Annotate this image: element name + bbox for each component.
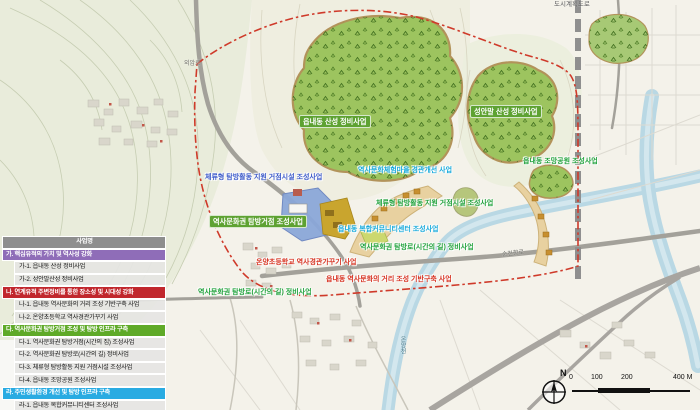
scale-tick: 0: [569, 374, 573, 381]
scale-tick: 100: [591, 374, 603, 381]
scale-tick: 200: [621, 374, 633, 381]
legend: 사업명 가. 핵심유적의 가치 및 역사성 강화 가-1. 읍내동 산성 정비사…: [2, 236, 166, 410]
map-label-tambang-ro-west: 역사문화권 탐방로(시간의 길) 정비사업: [198, 289, 312, 296]
compass-icon: [540, 378, 568, 406]
map-label-eupnaedong-sanseong: 읍내동 산성 정비사업: [299, 115, 371, 128]
legend-item: 다-3. 체류형 탐방활동 지원 거점시설 조성사업: [14, 362, 166, 375]
map-label-tambang-ro-east: 역사문화권 탐방로(시간의 길) 정비사업: [360, 244, 474, 251]
legend-title: 사업명: [2, 236, 166, 249]
scale-bar-segment: [598, 388, 650, 393]
legend-item: 다-1. 역사문화권 탐방거점(시간의 집) 조성사업: [14, 337, 166, 350]
map-label-community-center: 읍내동 복합커뮤니티센터 조성사업: [338, 226, 439, 233]
river-label-onyangcheon: 온양천: [399, 336, 405, 354]
planning-map: 읍내동 산성 정비사업 성안말 산성 정비사업 역사문화권 탐방거점 조성사업 …: [0, 0, 700, 410]
road-label-planned-road: 도시계획도로: [554, 2, 590, 9]
legend-group-da: 다. 역사문화권 탐방거점 조성 및 탐방 인프라 구축: [2, 324, 166, 337]
legend-group-ra: 라. 주민생활환경 개선 및 탐방 인프라 구축: [2, 387, 166, 400]
map-label-experience-village: 역사문화체험마을 경관개선 사업: [358, 167, 452, 174]
map-label-jomang-park: 읍내동 조망공원 조성사업: [523, 158, 598, 165]
map-label-tambang-geojeom: 역사문화권 탐방거점 조성사업: [209, 215, 307, 228]
map-label-stay-support-blue: 체류형 탐방활동 지원 거점시설 조성사업: [205, 174, 322, 181]
legend-item: 나-2. 온양초등학교 역사경관가꾸기 사업: [14, 311, 166, 324]
legend-group-na: 나. 연계유적 주변정비를 통한 장소성 및 시대성 강화: [2, 286, 166, 299]
legend-item: 다-4. 읍내동 조망공원 조성사업: [14, 374, 166, 387]
map-label-stay-support-green: 체류형 탐방활동 지원 거점시설 조성사업: [376, 200, 493, 207]
map-label-seonganmal-sanseong: 성안말 산성 정비사업: [470, 105, 542, 118]
map-label-history-street: 읍내동 역사문화의 거리 조성 기반구축 사업: [326, 276, 452, 283]
legend-item: 나-1. 읍내동 역사문화의 거리 조성 기반구축 사업: [14, 299, 166, 312]
legend-group-ga: 가. 핵심유적의 가치 및 역사성 강화: [2, 249, 166, 262]
scale-bar: 0 100 200 400 M: [565, 374, 700, 398]
legend-item: 가-2. 성안말산성 정비사업: [14, 274, 166, 287]
legend-item: 라-1. 읍내동 복합커뮤니티센터 조성사업: [14, 400, 166, 410]
legend-item: 다-2. 역사문화권 탐방로(시간의 길) 정비사업: [14, 349, 166, 362]
scale-tick: 400 M: [673, 374, 692, 381]
map-label-onyang-school: 온양초등학교 역사경관가꾸기 사업: [256, 259, 357, 266]
road-label-oeamro: 외암로: [184, 61, 201, 67]
legend-item: 가-1. 읍내동 산성 정비사업: [14, 261, 166, 274]
